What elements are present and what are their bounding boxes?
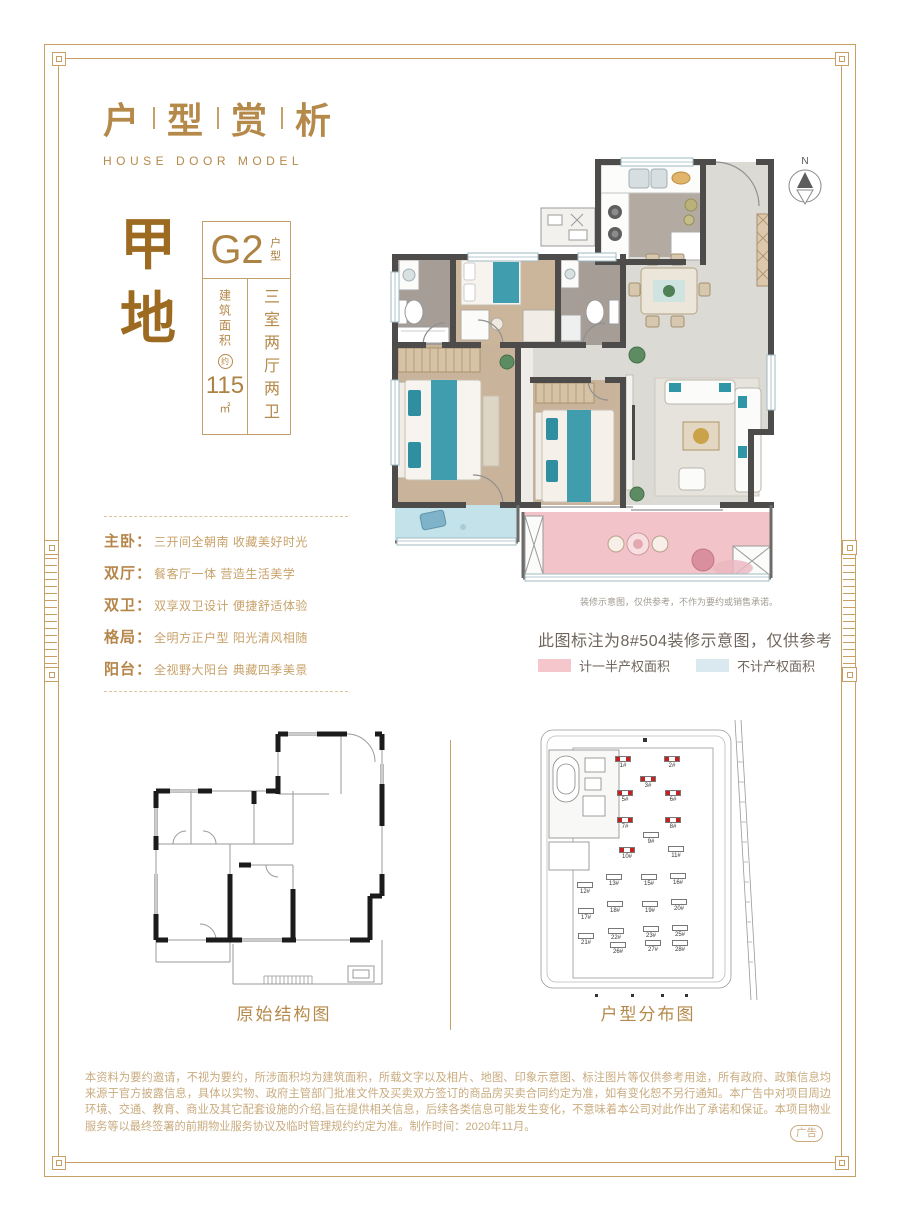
feature-desc: 双享双卫设计 便捷舒适体验 xyxy=(154,597,308,614)
site-building-3: 3# xyxy=(638,776,658,790)
unit-info-box: G2 户型 建筑面积 约 115 ㎡ 三室两厅两卫 xyxy=(202,221,291,435)
plant-icon xyxy=(692,549,714,571)
unit-code: G2 xyxy=(210,230,263,270)
frame-side-square xyxy=(44,540,59,555)
site-building-25: 25# xyxy=(670,925,690,939)
svg-text:N: N xyxy=(801,156,808,167)
unit-code-row: G2 户型 xyxy=(203,222,290,279)
disclaimer-text: 本资料为要约邀请，不视为要约，所涉面积均为建筑面积，所载文字以及相片、地图、印象… xyxy=(85,1070,831,1135)
toilet-icon xyxy=(586,300,604,324)
feature-desc: 餐客厅一体 营造生活美学 xyxy=(154,565,295,582)
site-building-17: 17# xyxy=(576,908,596,922)
title-separator xyxy=(217,107,219,129)
structure-thin-walls xyxy=(156,734,382,984)
feature-label: 主卧： xyxy=(104,530,152,551)
diagram-divider xyxy=(450,740,451,1030)
site-building-18: 18# xyxy=(605,901,625,915)
site-building-20: 20# xyxy=(669,899,689,913)
feature-label: 格局： xyxy=(104,626,152,647)
frame-side-ornament xyxy=(843,551,855,669)
site-building-10: 10# xyxy=(617,847,637,861)
area-approx-badge: 约 xyxy=(218,354,233,369)
distribution-diagram-label: 户型分布图 xyxy=(535,1000,761,1025)
feature-row: 双卫：双享双卫设计 便捷舒适体验 xyxy=(104,594,348,615)
title-separator xyxy=(153,107,155,129)
frame-corner-ornament xyxy=(52,52,66,66)
structure-diagram-label: 原始结构图 xyxy=(146,1000,422,1025)
site-building-2: 2# xyxy=(662,756,682,770)
frame-side-square xyxy=(842,540,857,555)
title-separator xyxy=(281,107,283,129)
feature-list: 主卧：三开间全朝南 收藏美好时光 双厅：餐客厅一体 营造生活美学 双卫：双享双卫… xyxy=(104,516,348,692)
area-unit: ㎡ xyxy=(220,400,231,416)
legend-swatch-pink xyxy=(538,659,571,672)
wardrobe-icon xyxy=(398,348,480,372)
structure-diagram xyxy=(146,724,422,990)
legend-item: 不计产权面积 xyxy=(696,656,815,675)
desk-icon xyxy=(461,310,489,340)
sink-icon xyxy=(629,169,649,188)
site-building-16: 16# xyxy=(668,873,688,887)
armchair-icon xyxy=(679,468,705,490)
legend-swatch-blue xyxy=(696,659,729,672)
poster-page: 户型赏析 HOUSE DOOR MODEL 甲地 G2 户型 建筑面积 约 11… xyxy=(0,0,900,1221)
site-building-9: 9# xyxy=(641,832,661,846)
site-building-21: 21# xyxy=(576,933,596,947)
cutting-board-icon xyxy=(672,172,690,184)
legend-label: 计一半产权面积 xyxy=(579,656,670,675)
site-building-19: 19# xyxy=(640,901,660,915)
feature-label: 阳台： xyxy=(104,658,152,679)
site-building-8: 8# xyxy=(663,817,683,831)
feature-row: 格局：全明方正户型 阳光清风相随 xyxy=(104,626,348,647)
balcony-no-right-area xyxy=(395,505,518,542)
unit-area-column: 建筑面积 约 115 ㎡ xyxy=(203,279,247,434)
page-subtitle: HOUSE DOOR MODEL xyxy=(103,154,333,168)
feature-row: 主卧：三开间全朝南 收藏美好时光 xyxy=(104,530,348,551)
floorplan-legend: 计一半产权面积 不计产权面积 xyxy=(538,656,815,675)
north-compass: N xyxy=(789,156,821,204)
title-char: 析 xyxy=(295,92,333,144)
header: 户型赏析 HOUSE DOOR MODEL xyxy=(103,92,333,168)
site-plan-buildings: 1#2#3#5#6#7#8#9#10#11#12#13#15#16#17#18#… xyxy=(535,712,761,1004)
feature-desc: 三开间全朝南 收藏美好时光 xyxy=(154,533,308,550)
frame-corner-ornament xyxy=(835,52,849,66)
frame-side-ornament xyxy=(45,551,57,669)
ad-badge: 广告 xyxy=(790,1125,823,1142)
floorplan-note: 此图标注为8#504装修示意图，仅供参考 xyxy=(538,627,833,651)
site-building-28: 28# xyxy=(670,940,690,954)
wardrobe-icon xyxy=(536,383,594,403)
legend-label: 不计产权面积 xyxy=(737,656,815,675)
title-char: 赏 xyxy=(231,92,269,144)
structure-hatch xyxy=(264,976,312,984)
structure-window-lines xyxy=(155,733,384,942)
site-building-13: 13# xyxy=(604,874,624,888)
title-char: 型 xyxy=(167,92,205,144)
feature-label: 双厅： xyxy=(104,562,152,583)
site-building-6: 6# xyxy=(663,790,683,804)
site-building-5: 5# xyxy=(615,790,635,804)
site-building-23: 23# xyxy=(641,926,661,940)
feature-label: 双卫： xyxy=(104,594,152,615)
plot-name: 甲地 xyxy=(112,208,184,356)
feature-desc: 全视野大阳台 典藏四季美景 xyxy=(154,661,308,678)
tv-icon xyxy=(632,405,635,460)
floorplan-small-caption: 装修示意图，仅供参考，不作为要约或销售承诺。 xyxy=(520,595,778,608)
floor-plan: N xyxy=(383,150,835,605)
site-building-22: 22# xyxy=(606,928,626,942)
feature-row: 双厅：餐客厅一体 营造生活美学 xyxy=(104,562,348,583)
toilet-icon xyxy=(405,300,423,324)
page-title: 户型赏析 xyxy=(103,92,333,144)
frame-corner-ornament xyxy=(835,1156,849,1170)
frame-side-square xyxy=(842,667,857,682)
area-label: 建筑面积 xyxy=(217,289,234,349)
entry-cabinet xyxy=(757,214,769,286)
site-building-15: 15# xyxy=(639,874,659,888)
plant-icon xyxy=(629,347,645,363)
site-building-1: 1# xyxy=(613,756,633,770)
frame-corner-ornament xyxy=(52,1156,66,1170)
site-building-27: 27# xyxy=(643,940,663,954)
site-building-26: 26# xyxy=(608,942,628,956)
area-value: 115 xyxy=(206,372,244,400)
title-char: 户 xyxy=(103,92,141,144)
site-building-7: 7# xyxy=(615,817,635,831)
feature-desc: 全明方正户型 阳光清风相随 xyxy=(154,629,308,646)
site-building-11: 11# xyxy=(666,846,686,860)
frame-side-square xyxy=(44,667,59,682)
legend-item: 计一半产权面积 xyxy=(538,656,670,675)
tv-cabinet-icon xyxy=(626,375,633,490)
unit-code-suffix: 户型 xyxy=(267,237,283,263)
feature-row: 阳台：全视野大阳台 典藏四季美景 xyxy=(104,658,348,679)
unit-layout: 三室两厅两卫 xyxy=(257,288,281,426)
structure-black-walls xyxy=(156,734,382,940)
site-building-12: 12# xyxy=(575,882,595,896)
unit-layout-column: 三室两厅两卫 xyxy=(247,279,290,434)
